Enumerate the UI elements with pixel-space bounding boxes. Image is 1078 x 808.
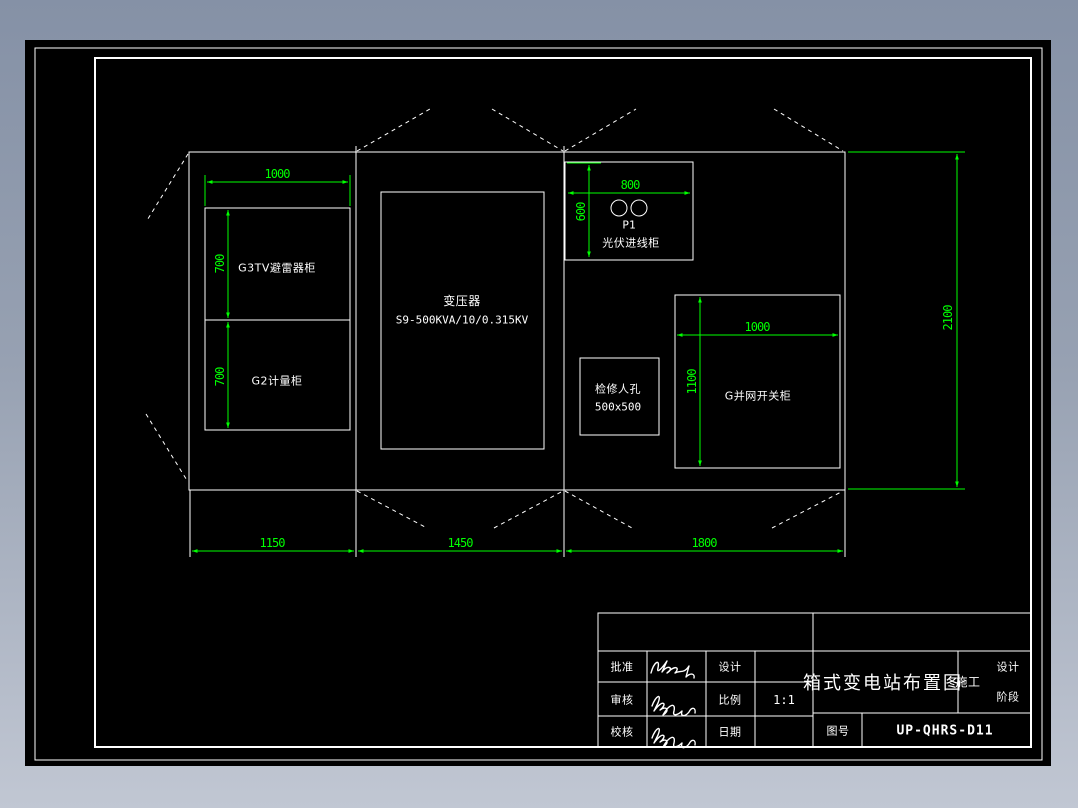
stage-label-line1: 设计 [997,662,1020,673]
drawing-canvas[interactable] [25,40,1051,766]
stage-value: 施工 [955,676,980,688]
transformer-spec-label: S9-500KVA/10/0.315KV [396,315,528,326]
proof-label: 校核 [611,727,634,738]
design-label: 设计 [719,662,742,673]
arrester-cabinet-label: G3TV避雷器柜 [238,263,316,274]
dim-pv-cabinet-height: 600 [575,203,587,222]
drawing-title: 箱式变电站布置图 [803,675,963,693]
metering-cabinet-label: G2计量柜 [251,376,302,387]
manhole-size-label: 500x500 [595,402,641,413]
grid-switch-cabinet-label: G并网开关柜 [725,391,792,402]
manhole-name-label: 检修人孔 [595,384,641,395]
dim-left-cabinet-width: 1000 [265,168,290,180]
dim-left-cabinet-cell1-height: 700 [214,255,226,274]
cad-viewport: G3TV避雷器柜 G2计量柜 变压器 S9-500KVA/10/0.315KV … [0,0,1078,808]
dim-left-cabinet-cell2-height: 700 [214,368,226,387]
stage-label-line2: 阶段 [997,692,1020,703]
dim-bay-3-width: 1800 [692,537,717,549]
dim-overall-depth: 2100 [942,306,954,331]
review-label: 审核 [611,695,634,706]
dim-pv-cabinet-width: 800 [621,179,640,191]
dim-bay-2-width: 1450 [448,537,473,549]
drawing-no-label: 图号 [827,726,850,737]
drawing-no-value: UP-QHRS-D11 [896,725,993,738]
scale-value: 1:1 [773,694,795,706]
dim-bay-1-width: 1150 [260,537,285,549]
transformer-name-label: 变压器 [443,295,481,307]
date-label: 日期 [719,727,742,738]
scale-label: 比例 [719,695,742,706]
pv-cabinet-code-label: P1 [622,220,635,231]
dim-switch-cabinet-height: 1100 [686,370,698,395]
approve-label: 批准 [611,662,634,673]
dim-switch-cabinet-width: 1000 [745,321,770,333]
pv-cabinet-name-label: 光伏进线柜 [602,238,660,249]
